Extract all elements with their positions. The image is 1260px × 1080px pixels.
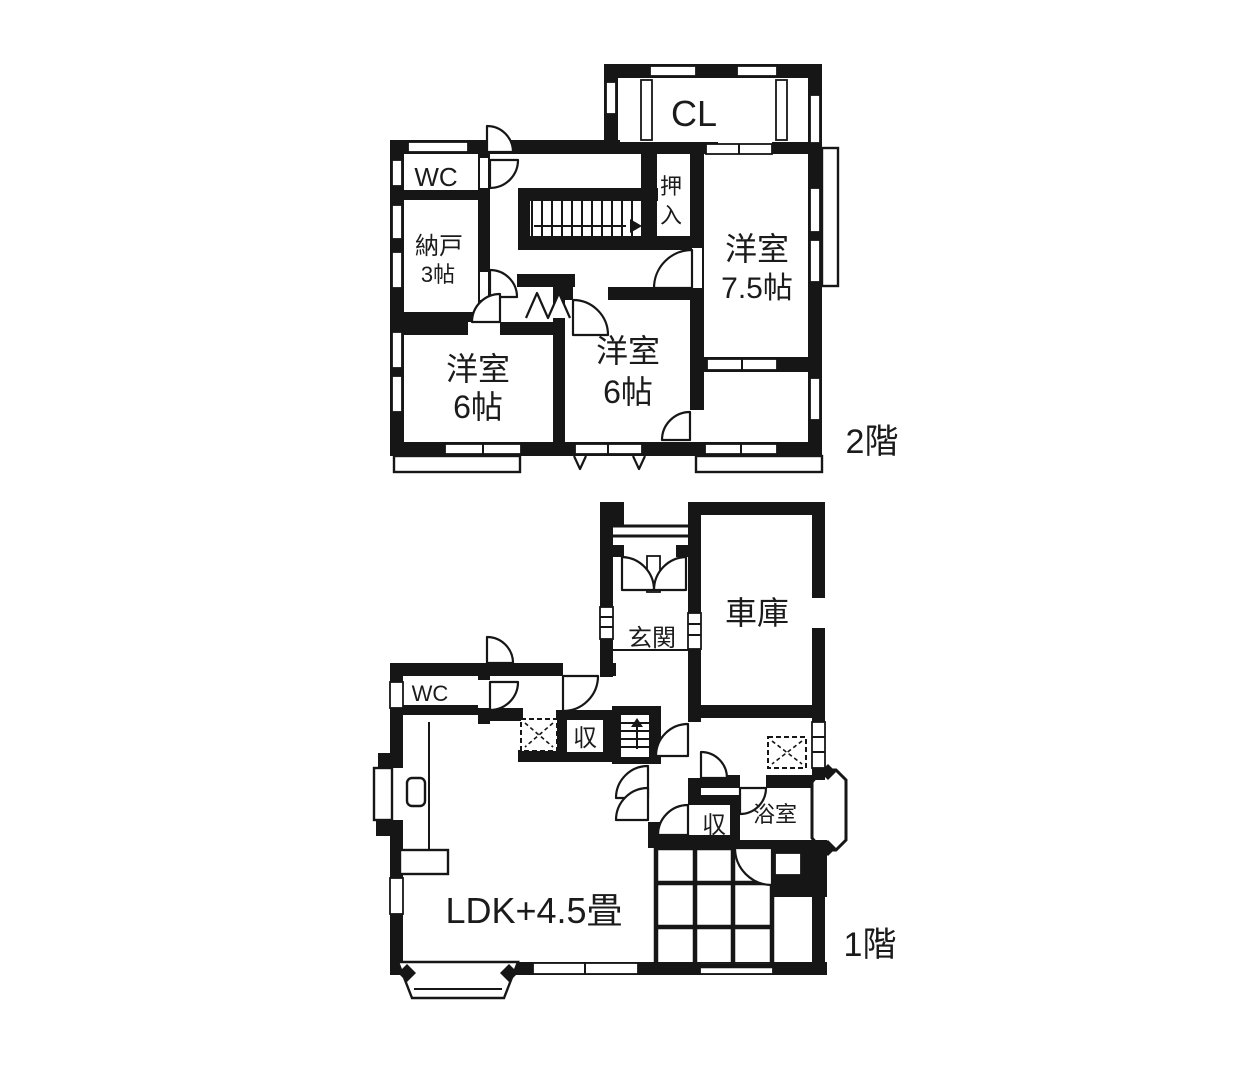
door-arc-room6-left: [472, 294, 500, 322]
room-label-oshiire: 入: [660, 203, 682, 228]
bay-window-left: [374, 768, 392, 820]
room-label-garage: 車庫: [725, 595, 789, 631]
room-label-western6-mid: 洋室: [596, 333, 660, 369]
room-label-wc-2f: WC: [414, 162, 457, 192]
door-arc-backdoor: [563, 676, 598, 711]
room-label-western6-mid-size: 6帖: [603, 374, 653, 410]
door-arc-room75: [654, 250, 692, 288]
floor2-stairs: [532, 201, 642, 236]
room-label-oshiire: 押: [660, 174, 682, 199]
room-label-western75-size: 7.5帖: [721, 272, 793, 305]
window-v-mark: [633, 456, 645, 469]
room-label-cl: CL: [671, 93, 717, 134]
door-arc-room-se: [662, 412, 690, 440]
porch-steps: [612, 526, 692, 536]
room-label-storage-kitchen: 収: [573, 725, 597, 752]
door-arc-north: [487, 126, 513, 152]
door-arc-tatami-hall: [658, 805, 688, 835]
room-label-storage-hall: 収: [702, 812, 726, 839]
floor2-title: 2階: [846, 423, 899, 461]
balcony-right: [696, 456, 822, 472]
stairs-arrow: [630, 219, 642, 233]
floorplan-svg: CL WC 納戸 3帖 押 入 洋室 7.5帖 洋室 6帖 洋室 6帖 2階: [0, 0, 1260, 1080]
floorplan-page: CL WC 納戸 3帖 押 入 洋室 7.5帖 洋室 6帖 洋室 6帖 2階: [0, 0, 1260, 1080]
room-label-bathroom: 浴室: [753, 802, 797, 827]
door-arc-north1: [487, 637, 513, 663]
floor1-title: 1階: [844, 926, 897, 964]
bath-bay-window: [812, 770, 846, 850]
door-arc-wc2: [490, 160, 518, 188]
door-leaf: [775, 853, 801, 875]
floor-2-plan: CL WC 納戸 3帖 押 入 洋室 7.5帖 洋室 6帖 洋室 6帖 2階: [390, 64, 898, 472]
balcony-left: [394, 456, 520, 472]
door-arc-storeroom: [490, 270, 517, 297]
room-label-western6-left: 洋室: [446, 351, 510, 387]
side-shutter-box: [822, 148, 838, 286]
door-arc-wc1: [490, 682, 518, 710]
room-label-western75: 洋室: [725, 231, 789, 267]
room-label-entrance: 玄関: [628, 625, 676, 652]
door-arc-washroom: [701, 752, 727, 778]
room-label-storeroom: 納戸: [415, 233, 463, 260]
window-v-mark: [574, 456, 586, 469]
bay-window-bottom: [398, 962, 518, 998]
room-label-wc-1f: WC: [412, 681, 449, 706]
door-arc-tatami: [735, 848, 772, 885]
room-label-storeroom-size: 3帖: [421, 262, 455, 287]
room-label-western6-left-size: 6帖: [453, 389, 503, 425]
kitchen-sink: [407, 778, 425, 806]
room-label-ldk: LDK+4.5畳: [445, 890, 622, 931]
kitchen-counter-return: [400, 850, 448, 874]
floor-1-plan: 玄関 車庫 WC 収 収 浴室 LDK+4.5畳 1階: [374, 502, 896, 998]
door-arc-room6-mid: [573, 300, 608, 335]
